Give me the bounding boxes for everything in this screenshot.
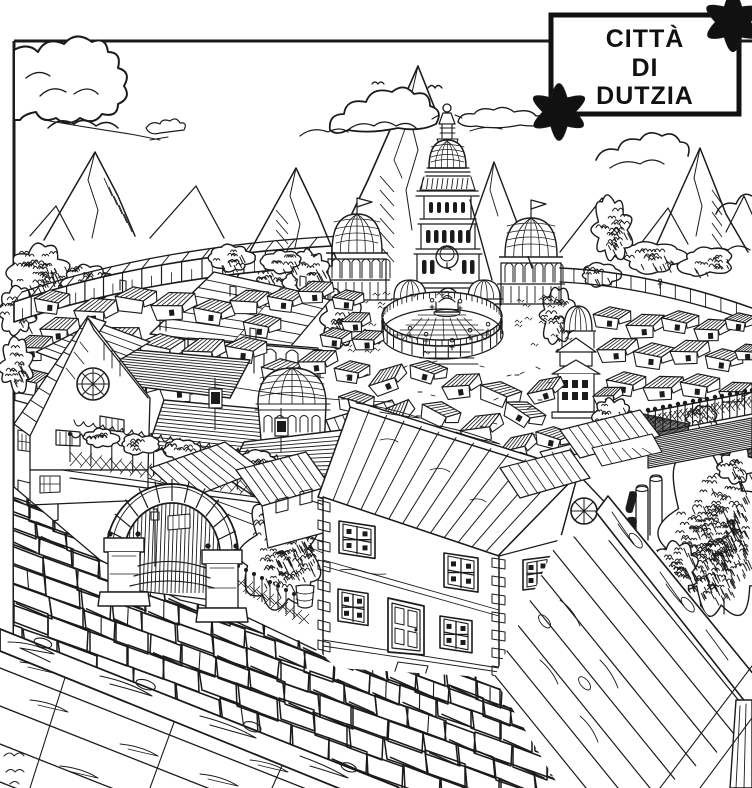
svg-text:DUTZIA: DUTZIA (596, 82, 694, 110)
svg-text:DI: DI (632, 54, 659, 82)
svg-text:CITTÀ: CITTÀ (606, 24, 685, 53)
